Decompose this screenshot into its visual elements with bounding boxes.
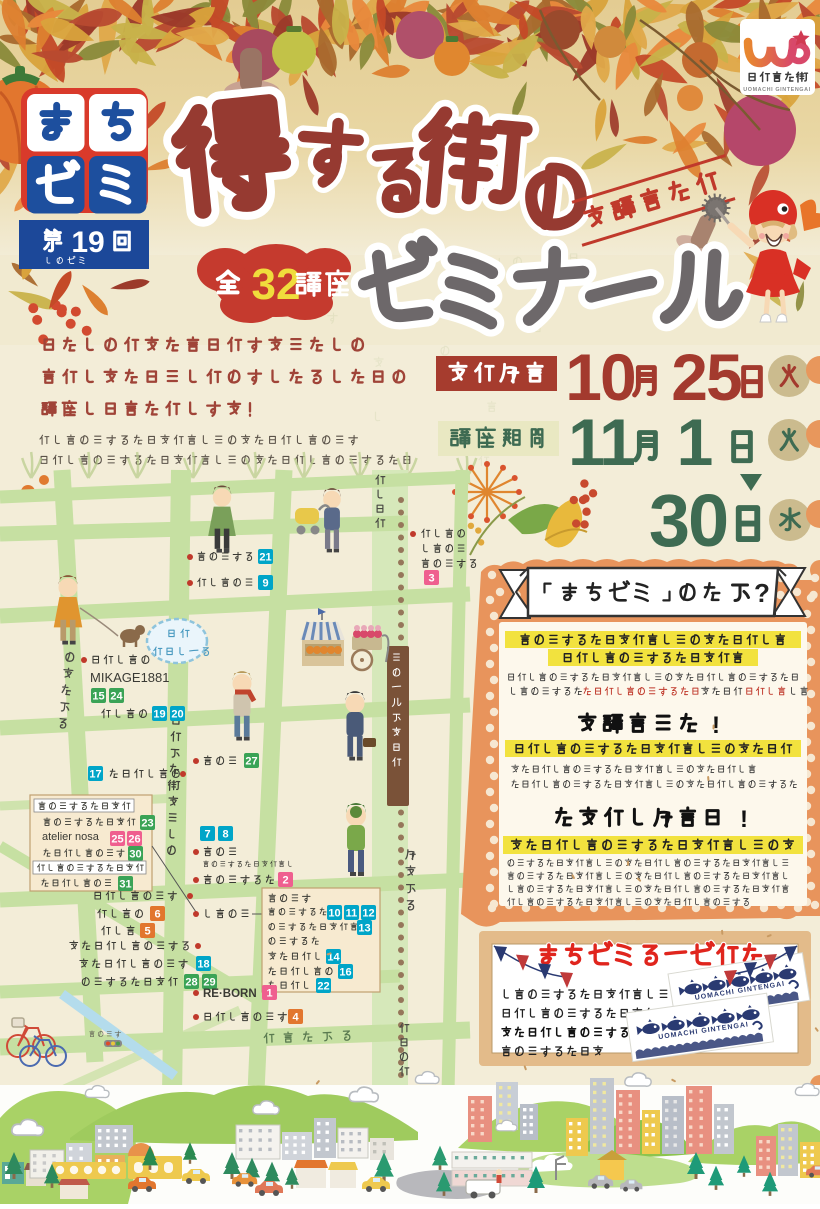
- svg-text:30: 30: [649, 479, 727, 562]
- svg-text:9: 9: [262, 578, 268, 590]
- svg-text:1: 1: [677, 405, 712, 479]
- svg-text:24: 24: [110, 691, 123, 703]
- svg-text:5: 5: [144, 926, 150, 938]
- svg-text:11: 11: [568, 405, 634, 479]
- svg-text:15: 15: [92, 691, 104, 703]
- svg-text:20: 20: [171, 709, 183, 721]
- svg-text:10: 10: [328, 908, 340, 920]
- svg-text:26: 26: [128, 834, 140, 846]
- svg-text:13: 13: [358, 923, 370, 935]
- svg-text:RE·BORN: RE·BORN: [203, 988, 257, 1000]
- svg-text:19: 19: [153, 709, 165, 721]
- svg-text:21: 21: [259, 552, 271, 564]
- svg-text:2: 2: [282, 875, 288, 887]
- svg-text:17: 17: [89, 769, 101, 781]
- svg-text:MIKAGE1881: MIKAGE1881: [90, 670, 170, 685]
- svg-text:8: 8: [222, 829, 228, 841]
- svg-text:28: 28: [185, 977, 197, 989]
- svg-text:18: 18: [197, 959, 209, 971]
- svg-text:1: 1: [266, 988, 272, 1000]
- svg-text:25: 25: [671, 340, 741, 414]
- svg-text:?: ?: [754, 578, 770, 608]
- svg-text:30: 30: [129, 849, 141, 861]
- svg-text:12: 12: [362, 908, 374, 920]
- svg-text:UOMACHI GINTENGAI: UOMACHI GINTENGAI: [743, 87, 810, 93]
- svg-text:16: 16: [339, 967, 351, 979]
- svg-text:27: 27: [245, 756, 257, 768]
- svg-text:19: 19: [71, 226, 104, 259]
- svg-text:11: 11: [346, 908, 358, 920]
- svg-text:6: 6: [154, 909, 160, 921]
- svg-text:7: 7: [204, 829, 210, 841]
- svg-text:29: 29: [203, 977, 215, 989]
- svg-text:10: 10: [565, 340, 634, 414]
- svg-text:4: 4: [292, 1012, 299, 1024]
- svg-text:32: 32: [252, 260, 301, 309]
- svg-text:atelier nosa: atelier nosa: [42, 831, 100, 843]
- svg-text:!: !: [740, 806, 748, 833]
- svg-text:23: 23: [141, 818, 153, 830]
- svg-text:22: 22: [317, 981, 329, 993]
- svg-text:31: 31: [119, 879, 131, 891]
- svg-text:3: 3: [428, 573, 434, 585]
- svg-text:25: 25: [111, 834, 123, 846]
